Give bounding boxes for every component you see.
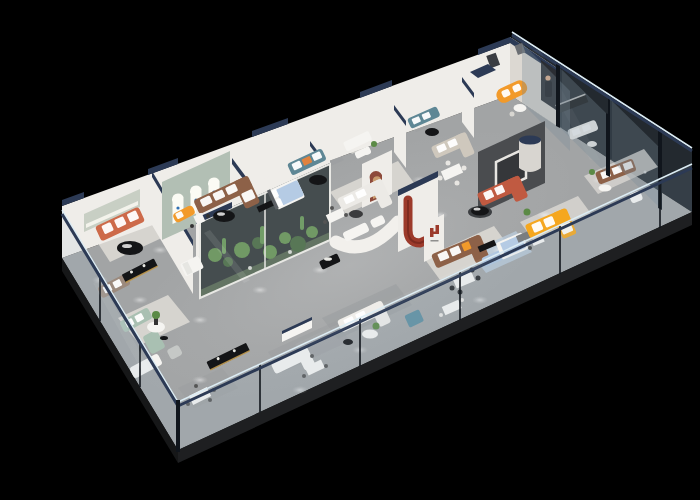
flowers-icon — [152, 311, 160, 319]
cylinder-column — [519, 140, 541, 172]
corner-post — [176, 400, 180, 452]
arch-logo-blue-icon — [176, 206, 179, 209]
round-side-table — [599, 185, 612, 192]
showroom-render: 3D isometric cutaway render of a furnitu… — [0, 0, 700, 500]
potted-plant-icon — [589, 169, 595, 175]
showroom-render-stage: 3D isometric cutaway render of a furnitu… — [0, 0, 700, 500]
